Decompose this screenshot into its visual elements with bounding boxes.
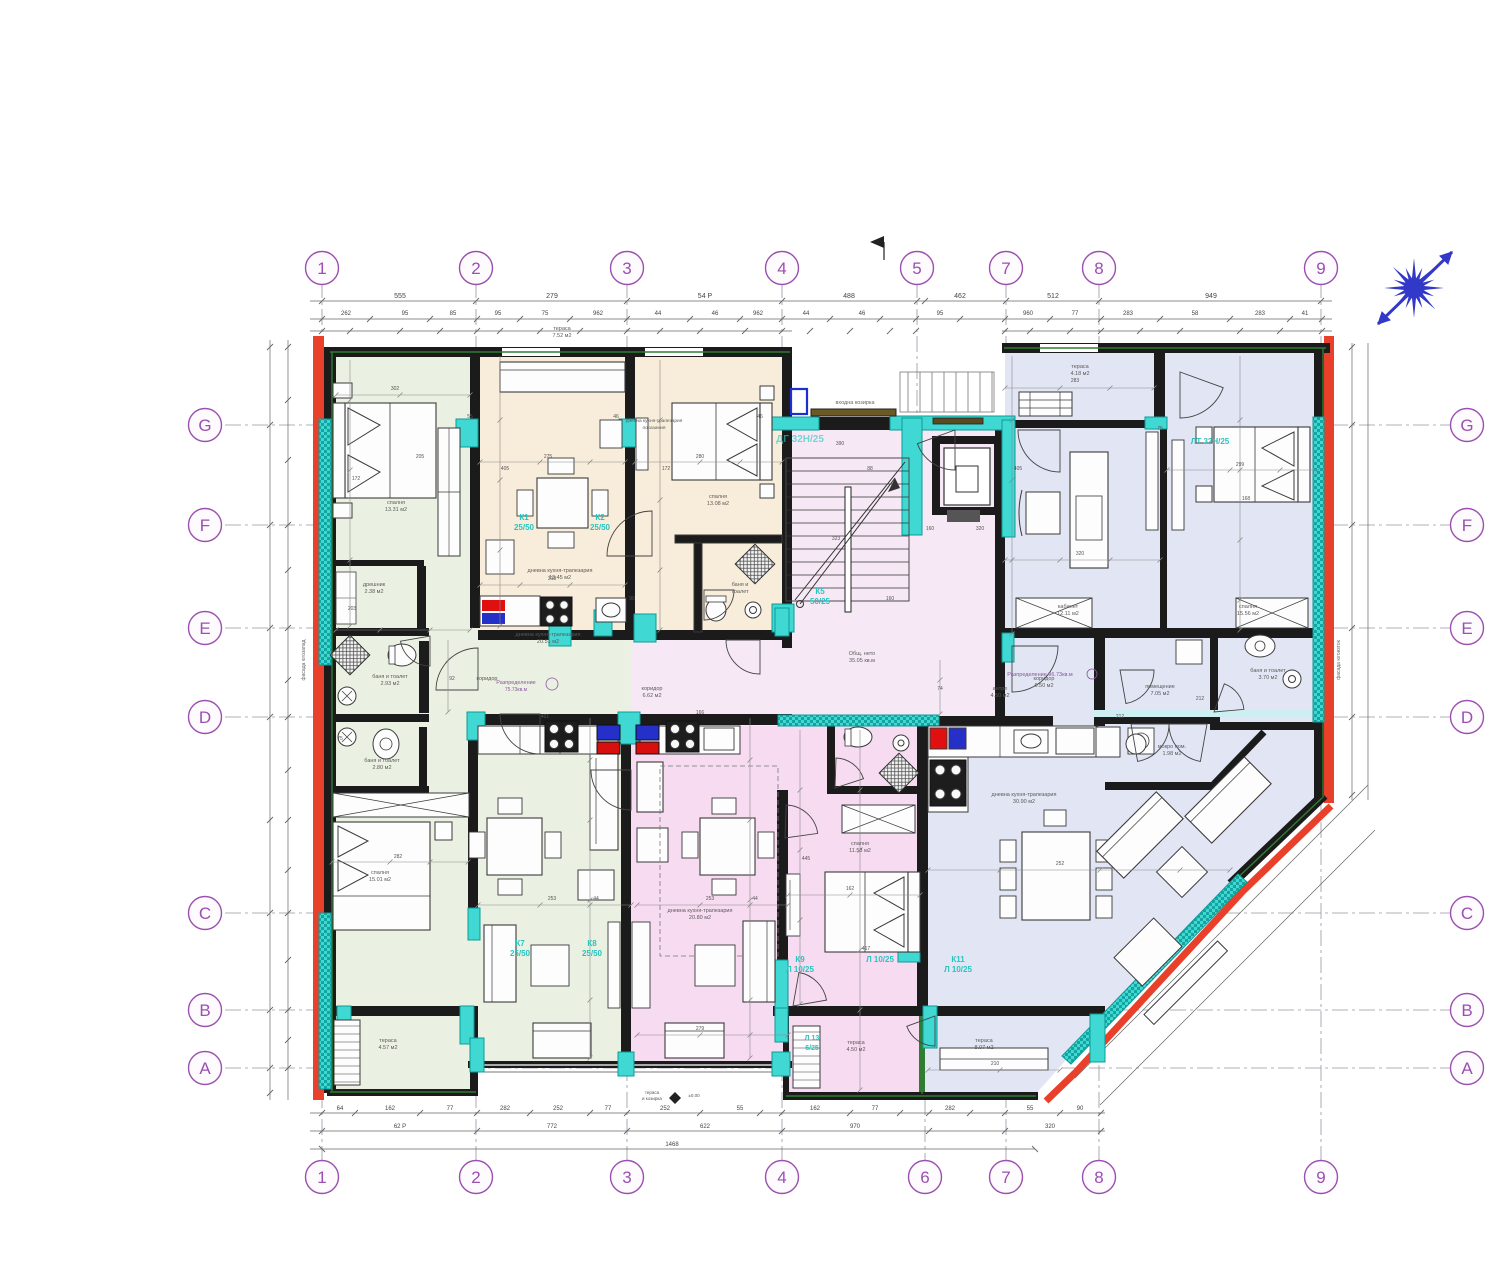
svg-text:E: E (1461, 619, 1472, 638)
svg-text:4.50 м2: 4.50 м2 (846, 1047, 865, 1053)
svg-text:970: 970 (850, 1124, 861, 1130)
svg-text:401: 401 (541, 714, 550, 720)
svg-text:помещение: помещение (1145, 684, 1175, 690)
svg-text:90: 90 (629, 596, 635, 602)
svg-text:166: 166 (696, 710, 705, 716)
svg-text:488: 488 (843, 293, 855, 300)
svg-text:3.70 м2: 3.70 м2 (1258, 675, 1277, 681)
svg-text:11.53 м2: 11.53 м2 (849, 848, 871, 854)
svg-text:3: 3 (622, 1168, 631, 1187)
svg-text:G: G (198, 416, 211, 435)
svg-text:960: 960 (1023, 311, 1034, 317)
svg-text:фасада югозапад: фасада югозапад (301, 639, 307, 680)
svg-text:283: 283 (1123, 311, 1134, 317)
svg-text:462: 462 (954, 293, 966, 300)
svg-text:13.31 м2: 13.31 м2 (385, 507, 407, 513)
svg-text:фасада югоизток: фасада югоизток (1336, 639, 1342, 680)
svg-text:46: 46 (613, 414, 619, 420)
svg-text:антре: антре (993, 686, 1008, 692)
svg-text:90: 90 (1077, 1106, 1084, 1112)
svg-text:279: 279 (696, 1026, 705, 1032)
svg-text:К5: К5 (815, 587, 825, 596)
svg-text:дневна кухня-трапезария: дневна кухня-трапезария (668, 908, 733, 914)
svg-text:62 P: 62 P (394, 1124, 406, 1130)
svg-text:К2: К2 (595, 513, 605, 522)
svg-text:4: 4 (777, 259, 786, 278)
svg-text:4: 4 (777, 1168, 786, 1187)
svg-text:205: 205 (416, 454, 425, 460)
svg-text:дневна кухня-трапезария: дневна кухня-трапезария (516, 632, 581, 638)
svg-text:13.08 м2: 13.08 м2 (707, 501, 729, 507)
svg-text:283: 283 (1071, 378, 1080, 384)
svg-text:160: 160 (886, 596, 895, 602)
svg-text:35.05 кв.м: 35.05 кв.м (849, 658, 875, 664)
svg-text:2: 2 (471, 1168, 480, 1187)
svg-text:6.62 м2: 6.62 м2 (642, 693, 661, 699)
svg-text:1: 1 (317, 259, 326, 278)
svg-text:К11: К11 (951, 955, 965, 964)
svg-text:спалня: спалня (851, 841, 869, 847)
svg-text:162: 162 (846, 886, 855, 892)
svg-text:К7: К7 (515, 939, 525, 948)
svg-text:8: 8 (1094, 1168, 1103, 1187)
svg-text:212: 212 (1196, 696, 1205, 702)
svg-text:252: 252 (1056, 861, 1065, 867)
svg-text:8.07 м2: 8.07 м2 (974, 1045, 993, 1051)
svg-text:C: C (1461, 904, 1473, 923)
svg-text:2.93 м2: 2.93 м2 (380, 681, 399, 687)
svg-text:75.73кв.м: 75.73кв.м (505, 687, 528, 693)
svg-text:20.80 м2: 20.80 м2 (689, 915, 711, 921)
svg-text:555: 555 (394, 293, 406, 300)
svg-text:44: 44 (655, 311, 662, 317)
svg-text:9: 9 (1316, 259, 1325, 278)
svg-text:показания: показания (643, 426, 666, 431)
svg-text:3: 3 (622, 259, 631, 278)
svg-text:44: 44 (752, 896, 758, 902)
svg-text:баня и тоалет: баня и тоалет (364, 758, 400, 764)
svg-text:2.38 м2: 2.38 м2 (364, 589, 383, 595)
svg-text:D: D (199, 708, 211, 727)
svg-text:баня и тоалет: баня и тоалет (372, 674, 408, 680)
svg-text:320: 320 (976, 526, 985, 532)
svg-text:8: 8 (1094, 259, 1103, 278)
svg-text:спалня: спалня (371, 870, 389, 876)
svg-text:1: 1 (317, 1168, 326, 1187)
svg-text:772: 772 (547, 1124, 558, 1130)
svg-text:баня и тоалет: баня и тоалет (1250, 668, 1286, 674)
svg-text:77: 77 (605, 1106, 612, 1112)
svg-text:74: 74 (937, 686, 943, 692)
svg-text:B: B (199, 1001, 210, 1020)
svg-text:77: 77 (1072, 311, 1079, 317)
svg-text:6/25: 6/25 (805, 1045, 819, 1052)
svg-text:спалня: спалня (387, 500, 405, 506)
svg-text:ЛТ 32Н/25: ЛТ 32Н/25 (1191, 437, 1230, 446)
svg-text:D: D (1461, 708, 1473, 727)
svg-text:дневна кухня-трапезария: дневна кухня-трапезария (992, 792, 1057, 798)
svg-text:тераса: тераса (645, 1090, 660, 1095)
svg-text:262: 262 (341, 311, 352, 317)
svg-text:C: C (199, 904, 211, 923)
svg-text:203: 203 (348, 606, 357, 612)
svg-text:253: 253 (548, 896, 557, 902)
svg-text:25/50: 25/50 (514, 523, 535, 532)
svg-text:622: 622 (700, 1124, 711, 1130)
svg-text:G: G (1460, 416, 1473, 435)
svg-text:949: 949 (1205, 293, 1217, 300)
svg-text:К8: К8 (587, 939, 597, 948)
svg-text:25/50: 25/50 (510, 949, 531, 958)
svg-text:88: 88 (867, 466, 873, 472)
svg-text:299: 299 (1236, 462, 1245, 468)
svg-text:Разпределение 96.73кв.м: Разпределение 96.73кв.м (1007, 672, 1073, 678)
svg-text:417: 417 (862, 946, 871, 952)
svg-text:Л 10/25: Л 10/25 (866, 955, 894, 964)
svg-text:7: 7 (1001, 259, 1010, 278)
svg-text:282: 282 (945, 1106, 956, 1112)
svg-text:дневна кухня-трапезария: дневна кухня-трапезария (626, 419, 683, 424)
svg-text:46: 46 (712, 311, 719, 317)
svg-text:54 P: 54 P (698, 293, 713, 300)
svg-text:A: A (1461, 1059, 1473, 1078)
svg-text:13.45 м2: 13.45 м2 (549, 575, 571, 581)
svg-text:коридор: коридор (642, 686, 663, 692)
svg-text:15.56 м2: 15.56 м2 (1237, 611, 1259, 617)
svg-text:тераса: тераса (847, 1040, 865, 1046)
svg-text:дрешник: дрешник (363, 582, 386, 588)
svg-text:тоалет: тоалет (731, 589, 749, 595)
svg-text:1468: 1468 (665, 1142, 679, 1148)
svg-text:ДГ 32Н/25: ДГ 32Н/25 (776, 434, 824, 445)
svg-text:75: 75 (542, 311, 549, 317)
svg-text:2: 2 (471, 259, 480, 278)
svg-text:5: 5 (912, 259, 921, 278)
svg-text:46: 46 (859, 311, 866, 317)
svg-text:Разпределение: Разпределение (496, 680, 536, 686)
svg-text:12.11 м2: 12.11 м2 (1057, 611, 1079, 617)
svg-text:41: 41 (1302, 311, 1309, 317)
svg-text:B: B (1461, 1001, 1472, 1020)
svg-text:212: 212 (1116, 714, 1125, 720)
svg-text:44: 44 (803, 311, 810, 317)
svg-text:172: 172 (352, 476, 361, 482)
svg-text:95: 95 (402, 311, 409, 317)
svg-text:E: E (199, 619, 210, 638)
svg-text:Общ. нето: Общ. нето (849, 651, 875, 657)
svg-text:25/50: 25/50 (582, 949, 603, 958)
svg-text:F: F (1462, 516, 1472, 535)
svg-text:405: 405 (1014, 466, 1023, 472)
svg-text:тераса: тераса (1071, 364, 1089, 370)
svg-text:30.90 м2: 30.90 м2 (1013, 799, 1035, 805)
svg-text:F: F (200, 516, 210, 535)
svg-text:253: 253 (706, 896, 715, 902)
svg-text:75: 75 (1157, 426, 1163, 432)
svg-text:25/50: 25/50 (590, 523, 611, 532)
svg-text:4.57 м2: 4.57 м2 (378, 1045, 397, 1051)
svg-text:162: 162 (385, 1106, 396, 1112)
svg-text:7: 7 (1001, 1168, 1010, 1187)
svg-text:162: 162 (810, 1106, 821, 1112)
svg-text:445: 445 (802, 856, 811, 862)
svg-text:95: 95 (937, 311, 944, 317)
svg-text:77: 77 (447, 1106, 454, 1112)
svg-text:275: 275 (544, 454, 553, 460)
svg-text:тераса: тераса (379, 1038, 397, 1044)
svg-text:323: 323 (832, 536, 841, 542)
svg-text:280: 280 (696, 454, 705, 460)
svg-text:коридор: коридор (477, 676, 498, 682)
svg-text:4.50 м2: 4.50 м2 (990, 693, 1009, 699)
svg-text:962: 962 (753, 311, 764, 317)
svg-text:252: 252 (553, 1106, 564, 1112)
svg-text:50/25: 50/25 (810, 597, 831, 606)
svg-text:20.51 м2: 20.51 м2 (537, 639, 559, 645)
svg-text:15.01 м2: 15.01 м2 (369, 877, 391, 883)
svg-text:9: 9 (1316, 1168, 1325, 1187)
svg-text:160: 160 (926, 526, 935, 532)
svg-text:1.98 м2: 1.98 м2 (1162, 751, 1181, 757)
svg-text:55: 55 (1027, 1106, 1034, 1112)
svg-text:тераса: тераса (553, 326, 571, 332)
svg-text:282: 282 (500, 1106, 511, 1112)
svg-text:92: 92 (449, 676, 455, 682)
svg-text:мокро пом.: мокро пом. (1158, 744, 1187, 750)
svg-text:Л 13: Л 13 (805, 1035, 820, 1042)
svg-text:320: 320 (1076, 551, 1085, 557)
svg-text:77: 77 (872, 1106, 879, 1112)
svg-text:A: A (199, 1059, 211, 1078)
svg-text:тераса: тераса (975, 1038, 993, 1044)
svg-text:279: 279 (546, 293, 558, 300)
svg-text:252: 252 (660, 1106, 671, 1112)
svg-text:405: 405 (501, 466, 510, 472)
svg-text:К1: К1 (519, 513, 529, 522)
svg-text:Л 10/25: Л 10/25 (944, 965, 972, 974)
svg-text:2.80 м2: 2.80 м2 (372, 765, 391, 771)
svg-text:6: 6 (920, 1168, 929, 1187)
svg-text:55: 55 (737, 1106, 744, 1112)
svg-text:75: 75 (337, 736, 343, 742)
svg-text:К9: К9 (795, 955, 805, 964)
svg-text:962: 962 (593, 311, 604, 317)
svg-text:282: 282 (394, 854, 403, 860)
svg-text:44: 44 (593, 896, 599, 902)
svg-text:спалня: спалня (709, 494, 727, 500)
svg-text:55: 55 (467, 414, 473, 420)
svg-text:302: 302 (391, 386, 400, 392)
svg-text:и козирка: и козирка (642, 1096, 662, 1101)
svg-text:±0.00: ±0.00 (688, 1093, 700, 1098)
svg-text:172: 172 (662, 466, 671, 472)
svg-text:210: 210 (991, 1061, 1000, 1067)
svg-text:6.50 м2: 6.50 м2 (1034, 683, 1053, 689)
svg-text:320: 320 (1045, 1124, 1056, 1130)
svg-text:85: 85 (450, 311, 457, 317)
svg-text:4.18 м2: 4.18 м2 (1070, 371, 1089, 377)
svg-text:58: 58 (1192, 311, 1199, 317)
svg-text:7.52 м2: 7.52 м2 (552, 333, 571, 339)
svg-text:390: 390 (836, 441, 845, 447)
svg-text:512: 512 (1047, 293, 1059, 300)
svg-text:спалня: спалня (1239, 604, 1257, 610)
svg-text:283: 283 (1255, 311, 1266, 317)
svg-text:46: 46 (757, 414, 763, 420)
svg-text:дневна кухня-трапезария: дневна кухня-трапезария (528, 568, 593, 574)
svg-text:входна козирка: входна козирка (835, 400, 875, 406)
svg-text:95: 95 (495, 311, 502, 317)
svg-text:168: 168 (1242, 496, 1251, 502)
svg-text:64: 64 (337, 1106, 344, 1112)
svg-text:7.05 м2: 7.05 м2 (1150, 691, 1169, 697)
svg-text:баня и: баня и (732, 582, 749, 588)
svg-text:Л 10/25: Л 10/25 (786, 965, 814, 974)
svg-text:кабинет: кабинет (1058, 604, 1079, 610)
